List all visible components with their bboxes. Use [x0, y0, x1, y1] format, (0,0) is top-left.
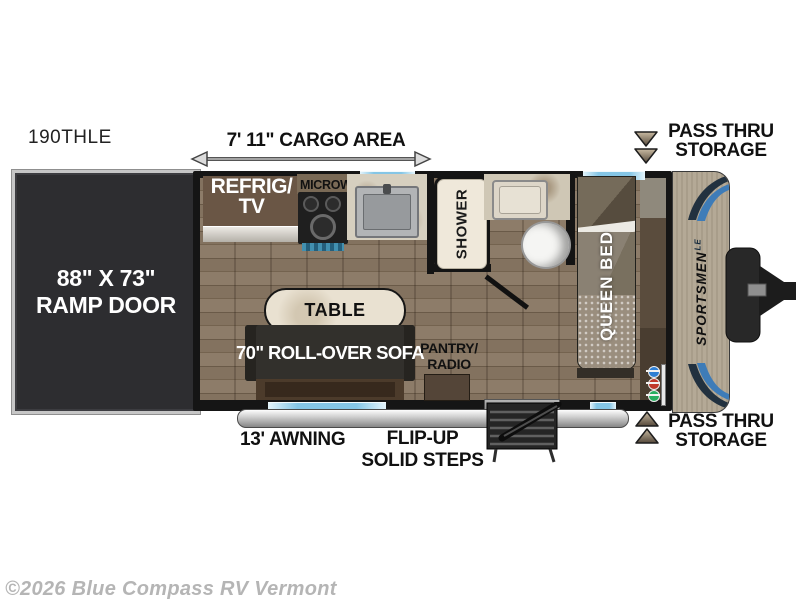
- chevron-up-icon: [634, 410, 660, 448]
- pantry-line: PANTRY/: [408, 341, 490, 357]
- storage-line: STORAGE: [660, 141, 782, 160]
- sink-basin: [363, 194, 411, 230]
- valve-blue-icon: [648, 366, 660, 378]
- sofa-base: [256, 379, 404, 400]
- burner-icon: [310, 214, 336, 240]
- pass-thru-line: PASS THRU: [660, 122, 782, 141]
- faucet-icon: [383, 184, 391, 194]
- refrig-label: REFRIG/: [203, 177, 300, 197]
- valve-red-icon: [648, 378, 660, 390]
- pantry-cabinet: [424, 374, 470, 401]
- utility-pipe: [661, 364, 666, 406]
- ramp-door: 88" X 73" RAMP DOOR: [12, 170, 200, 414]
- bathroom-sink: [492, 180, 548, 220]
- dimension-arrow-icon: [190, 150, 432, 168]
- brand-logo: SPORTSMENLE: [693, 238, 709, 346]
- valve-green-icon: [648, 390, 660, 402]
- bathroom-counter: [484, 174, 570, 220]
- flip-up-steps: [486, 402, 562, 466]
- brand-name: SPORTSMEN: [694, 251, 709, 345]
- kitchen-sink: [355, 186, 419, 238]
- radio-line: RADIO: [408, 357, 490, 373]
- pantry-radio-label: PANTRY/ RADIO: [408, 341, 490, 372]
- stove-cooktop: [298, 192, 348, 244]
- burner-icon: [325, 196, 341, 212]
- steps-line1: FLIP-UP: [350, 428, 495, 450]
- awning-roll: [237, 409, 629, 428]
- burner-icon: [303, 196, 319, 212]
- storage-line: STORAGE: [660, 431, 782, 450]
- flip-up-steps-label: FLIP-UP SOLID STEPS: [350, 428, 495, 472]
- floorplan-diagram: 190THLE 7' 11" CARGO AREA PASS THRU STOR…: [0, 0, 800, 600]
- steps-line2: SOLID STEPS: [350, 450, 495, 472]
- queen-bed: QUEEN BED: [577, 176, 636, 370]
- pass-thru-storage-bottom-label: PASS THRU STORAGE: [660, 412, 782, 450]
- hitch-tongue: [722, 240, 798, 350]
- toilet: [521, 221, 571, 269]
- pass-thru-storage-top-label: PASS THRU STORAGE: [660, 122, 782, 160]
- copyright-watermark: ©2026 Blue Compass RV Vermont: [5, 578, 337, 600]
- model-number-label: 190THLE: [28, 127, 112, 149]
- utility-valves-icon: [646, 366, 672, 404]
- ramp-door-size-label: 88" X 73": [57, 265, 155, 292]
- shower-stall: SHOWER: [434, 176, 490, 272]
- table-label: TABLE: [304, 300, 365, 321]
- roll-over-sofa: 70" ROLL-OVER SOFA: [245, 325, 415, 381]
- queen-bed-label: QUEEN BED: [597, 231, 617, 341]
- pass-thru-line: PASS THRU: [660, 412, 782, 431]
- bed-foot-board: [577, 368, 634, 378]
- brand-trim: LE: [693, 238, 702, 250]
- sink-basin: [499, 186, 541, 214]
- tv-label: TV: [203, 197, 300, 217]
- cargo-area-dimension-label: 7' 11" CARGO AREA: [198, 130, 434, 152]
- ramp-door-label: RAMP DOOR: [36, 292, 176, 319]
- shower-label: SHOWER: [454, 189, 471, 260]
- cabinet-edge: [203, 226, 300, 242]
- awning-label: 13' AWNING: [240, 429, 345, 451]
- sofa-label: 70" ROLL-OVER SOFA: [236, 342, 424, 364]
- refrigerator-tv-cabinet: REFRIG/ TV: [203, 176, 300, 242]
- stove-vent: [302, 243, 344, 251]
- kitchen-counter: [347, 174, 427, 240]
- bathroom-wall: [427, 171, 434, 274]
- chevron-down-icon: [633, 130, 659, 168]
- bed-pillows: [578, 177, 635, 227]
